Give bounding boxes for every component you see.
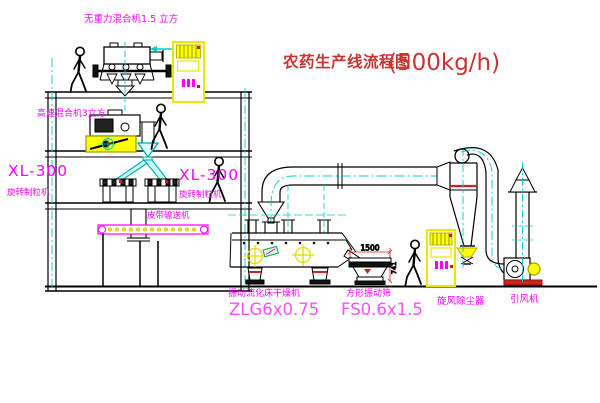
indicator-red-dot [197,85,200,88]
indicator-lights-icon [182,79,195,87]
label-fan: 引风机 [510,293,539,305]
induced-draft-fan [504,258,542,285]
label-dryer-model: ZLG6x0.75 [229,300,319,319]
y-pipe [112,157,169,182]
indicator-lights-icon [435,261,448,269]
label-sieve: 方形振动筛 [346,287,391,299]
indicator-red-dot [450,265,453,268]
label-granulator-model-right: XL-300 [179,166,239,184]
indicator-red-dot [449,234,452,237]
sieve-length-dim: 1500 [360,244,379,253]
granulator-left [100,179,136,202]
label-sieve-model: FS0.6x1.5 [341,300,423,319]
label-gravity-mixer: 无重力混合机1.5 立方 [84,13,178,25]
indicator-red-dot [119,180,122,183]
dryer-mounts [246,268,330,284]
indicator-red-dot [197,46,200,49]
diagram-title: 农药生产线流程图 (500kg/h) [282,50,500,76]
label-dryer: 振动流化床干燥机 [228,287,300,299]
title-capacity: (500kg/h) [388,50,500,76]
granulator-right [145,179,179,202]
label-granulator-model-left: XL-300 [8,162,68,180]
control-cabinet-right [427,230,455,286]
person-figure-1 [71,47,87,92]
label-cyclone: 旋风除尘器 [437,295,485,307]
label-belt-conveyor: 皮带输送机 [147,210,190,221]
fan-base [504,280,542,285]
belt-conveyor [98,225,208,286]
fan-motor [528,263,540,275]
dryer-inspection-window [263,246,278,256]
flow-arrow-icon [150,46,157,52]
diagram-canvas: 1500 741 [0,0,600,403]
indicator-red-dot [165,180,168,183]
label-granulator-name-right: 旋转制粒机 [179,189,222,200]
control-cabinet-top [173,42,204,102]
person-figure-4 [406,240,422,285]
cad-flow-diagram: 1500 741 [0,0,600,403]
transfer-pipe [228,163,437,233]
label-granulator-name-left: 旋转制粒机 [7,187,50,198]
label-high-speed-mixer: 高速混合机3立方 [37,107,106,119]
square-sieve: 1500 741 [348,244,398,285]
